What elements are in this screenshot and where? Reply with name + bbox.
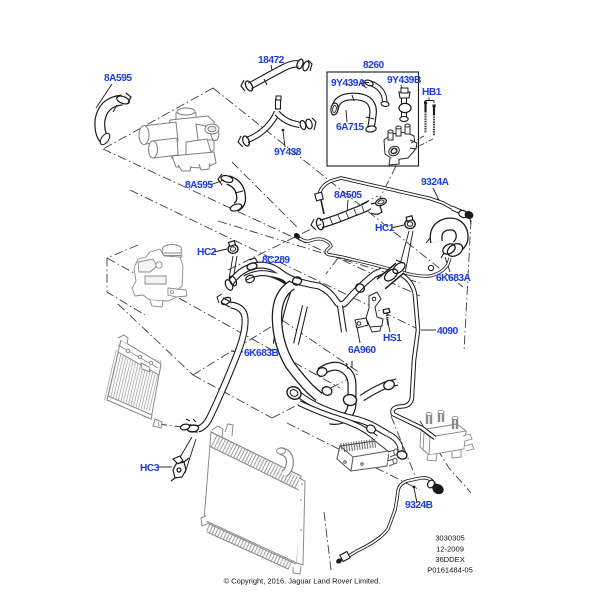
svg-text:9Y439A: 9Y439A xyxy=(331,78,366,89)
svg-text:4090: 4090 xyxy=(437,326,458,337)
svg-text:HB1: HB1 xyxy=(422,87,442,98)
svg-text:8A595: 8A595 xyxy=(185,180,213,191)
svg-text:9Y438: 9Y438 xyxy=(274,147,302,158)
svg-text:8A595: 8A595 xyxy=(104,73,132,84)
svg-text:8260: 8260 xyxy=(363,60,384,71)
svg-text:P0161484-05: P0161484-05 xyxy=(427,566,473,575)
svg-text:36DDEX: 36DDEX xyxy=(435,555,465,564)
svg-text:8A505: 8A505 xyxy=(334,190,362,201)
svg-text:8C289: 8C289 xyxy=(262,255,290,266)
svg-text:6A960: 6A960 xyxy=(348,345,376,356)
svg-text:HC1: HC1 xyxy=(375,223,395,234)
svg-text:HS1: HS1 xyxy=(383,333,402,344)
svg-text:HC3: HC3 xyxy=(140,463,160,474)
svg-text:6K683B: 6K683B xyxy=(244,348,279,359)
svg-text:12-2009: 12-2009 xyxy=(436,544,464,553)
svg-text:9Y439B: 9Y439B xyxy=(387,75,421,86)
svg-text:18472: 18472 xyxy=(258,55,285,66)
svg-text:6K683A: 6K683A xyxy=(436,273,472,284)
svg-text:9324A: 9324A xyxy=(421,177,450,188)
svg-text:© Copyright, 2016. Jaguar Land: © Copyright, 2016. Jaguar Land Rover Lim… xyxy=(224,576,381,585)
svg-text:3030305: 3030305 xyxy=(435,534,465,543)
svg-text:9324B: 9324B xyxy=(405,500,433,511)
svg-text:6A715: 6A715 xyxy=(336,122,364,133)
svg-text:HC2: HC2 xyxy=(197,247,217,258)
